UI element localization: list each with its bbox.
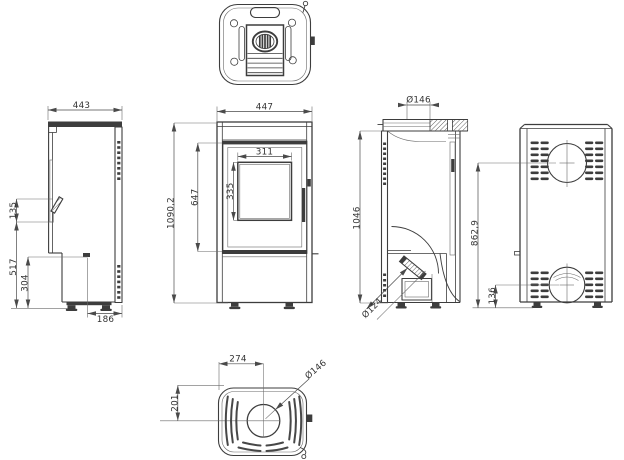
- top-plate: [48, 122, 122, 128]
- dim-bottom-offset-x: 274: [229, 354, 247, 364]
- dim-side-flue-diameter: Ø146: [406, 94, 431, 105]
- technical-drawing-page: 443 135 517 304 186: [0, 0, 624, 460]
- bottom-view: 274 201 Ø146: [160, 354, 329, 458]
- front-vent-slots: [383, 143, 386, 298]
- side-tab: [515, 252, 521, 256]
- dim-front-glass-width: 311: [256, 147, 273, 157]
- door-glass-edge: [50, 160, 52, 222]
- stove-dimensional-drawing: 443 135 517 304 186: [0, 0, 624, 460]
- dim-left-base-height: 304: [21, 274, 31, 292]
- back-view: 862,9 136: [471, 125, 613, 309]
- dim-left-width: 443: [73, 101, 90, 111]
- front-view: 447 1090,2 647 311 335: [167, 102, 319, 309]
- right-side-view: Ø146 1046 Ø124: [353, 94, 468, 320]
- dim-front-width: 447: [256, 102, 273, 112]
- dim-bottom-offset-y: 201: [170, 394, 180, 411]
- side-latch-tab: [311, 37, 315, 46]
- rear-vent-slots: [117, 141, 120, 299]
- dim-side-height: 1046: [353, 206, 363, 229]
- dim-front-total-height: 1090,2: [167, 197, 177, 229]
- dim-front-glass-height: 335: [226, 183, 236, 200]
- dim-bottom-flue-diameter: Ø146: [303, 357, 329, 381]
- top-view: [220, 1, 315, 84]
- top-rear-louvres: [248, 54, 283, 73]
- dim-front-door-height: 647: [190, 189, 200, 206]
- hinge: [307, 179, 310, 187]
- door-handle-bar: [302, 188, 305, 222]
- dim-back-flue-height: 862,9: [471, 220, 481, 246]
- left-side-view: 443 135 517 304 186: [9, 101, 122, 325]
- plinth: [67, 302, 112, 305]
- dim-left-handle-height: 135: [9, 202, 19, 219]
- door-glass: [238, 162, 292, 220]
- dim-left-lower-height: 517: [9, 258, 19, 275]
- top-handle-cutout: [251, 8, 280, 18]
- side-latch-tab: [307, 415, 313, 423]
- dim-back-intake-height: 136: [488, 287, 498, 305]
- dim-left-rear-depth: 186: [97, 315, 115, 325]
- air-channel-curve: [388, 131, 447, 142]
